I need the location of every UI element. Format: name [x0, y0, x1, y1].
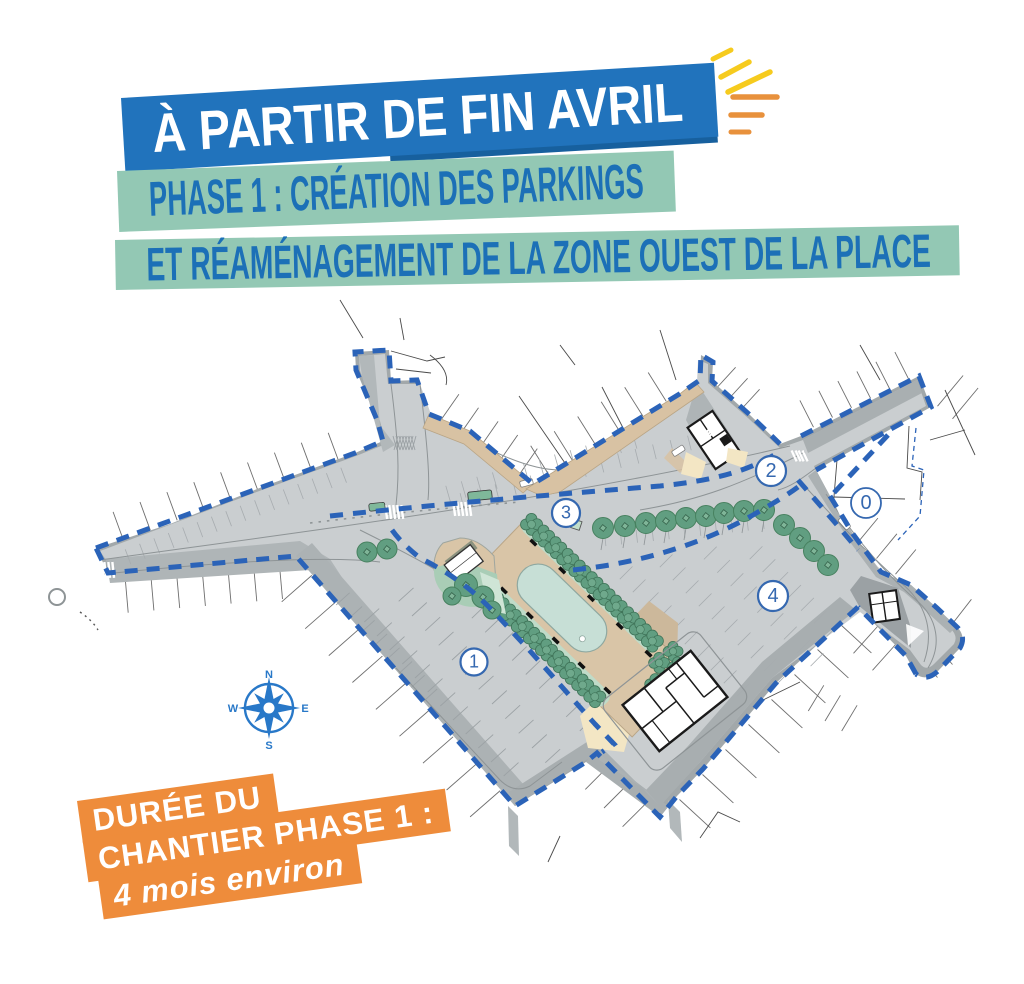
svg-text:W: W	[228, 703, 239, 715]
svg-text:0: 0	[860, 492, 871, 514]
svg-text:3: 3	[561, 502, 571, 522]
svg-text:1: 1	[469, 651, 479, 671]
svg-text:4: 4	[767, 585, 778, 607]
svg-text:N: N	[265, 669, 273, 681]
svg-text:E: E	[301, 703, 308, 715]
svg-text:2: 2	[765, 460, 776, 482]
svg-text:S: S	[265, 740, 272, 752]
